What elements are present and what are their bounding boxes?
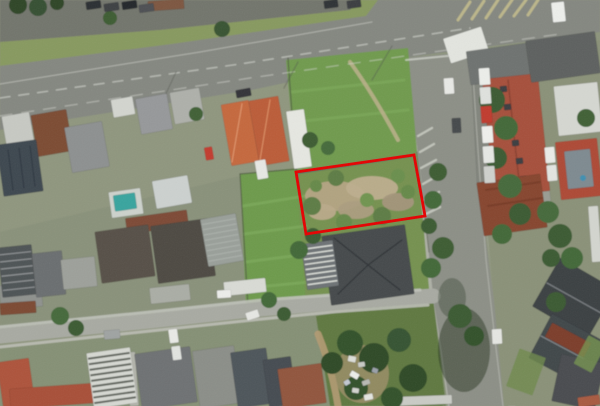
aerial-photo-canvas [0,0,600,406]
photo-grain-texture [0,0,600,406]
satellite-map-image [0,0,600,406]
